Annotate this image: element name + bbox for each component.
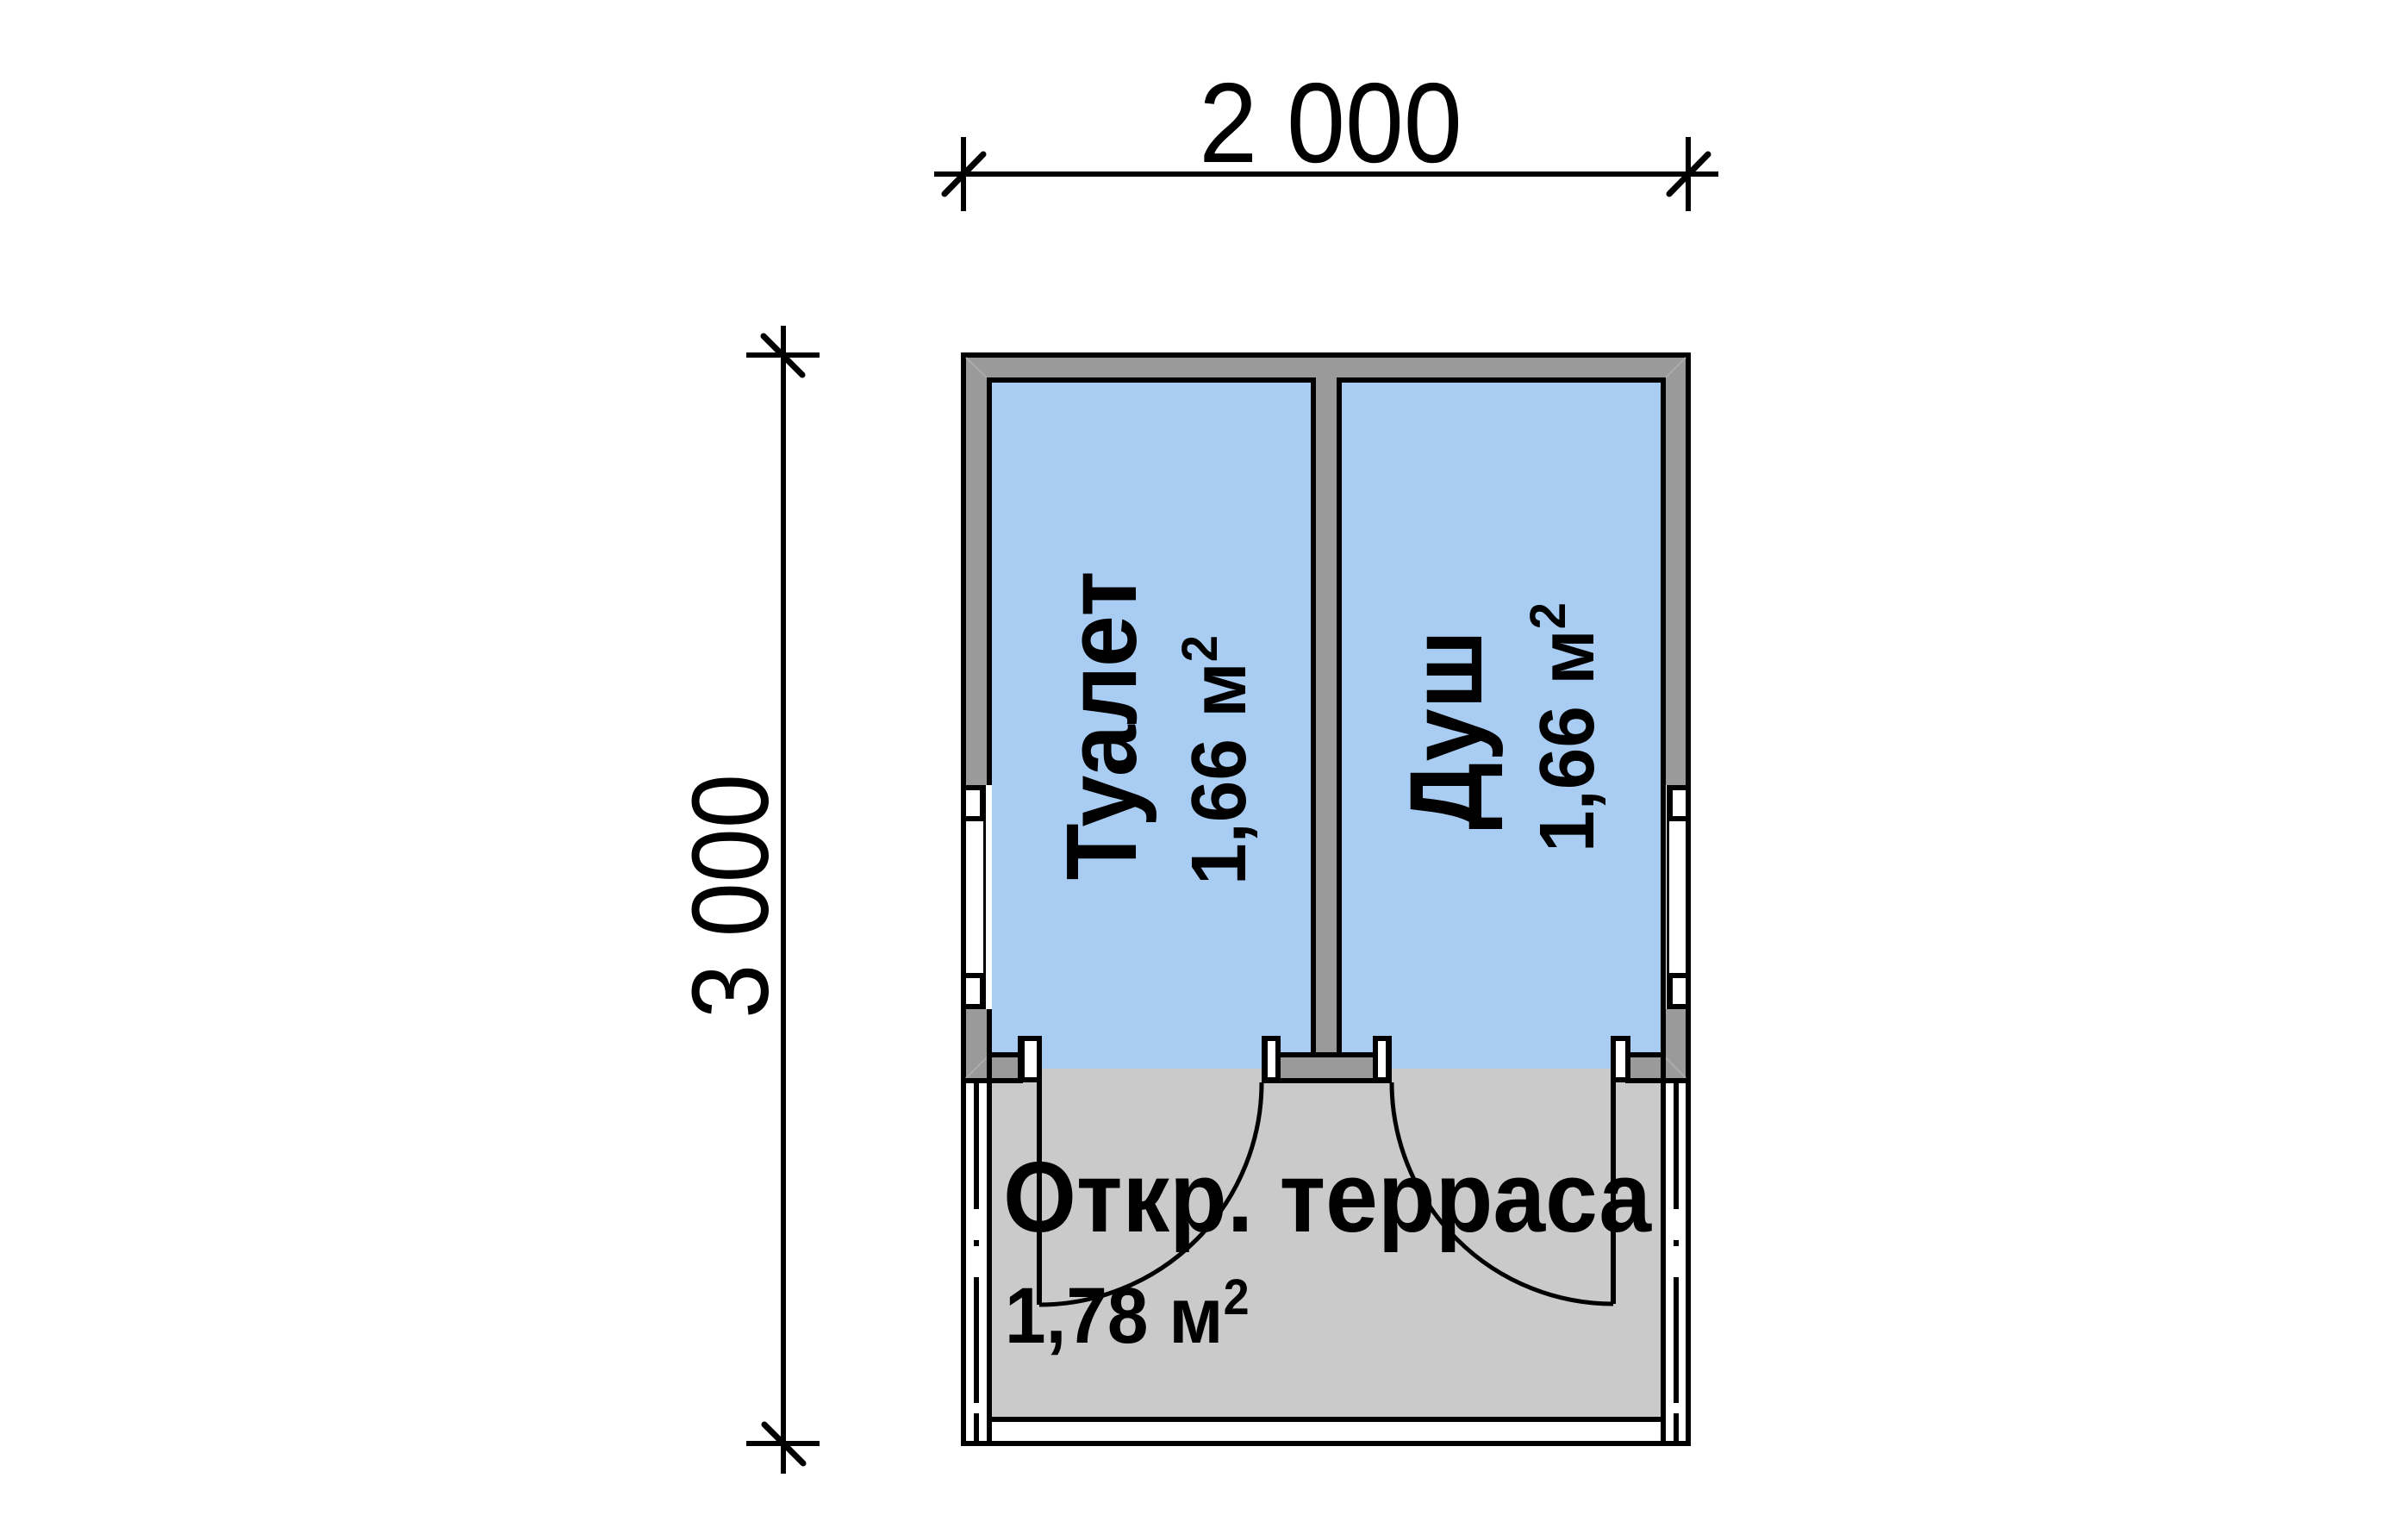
svg-text:3 000: 3 000 <box>670 774 791 1019</box>
svg-text:Откр. терраса: Откр. терраса <box>1003 1141 1652 1253</box>
svg-text:1,66 м2: 1,66 м2 <box>1520 602 1610 852</box>
svg-text:1,78 м2: 1,78 м2 <box>1005 1269 1250 1359</box>
svg-text:Душ: Душ <box>1389 630 1505 830</box>
svg-text:1,66 м2: 1,66 м2 <box>1172 635 1262 885</box>
svg-text:2 000: 2 000 <box>1199 59 1462 186</box>
svg-text:Туалет: Туалет <box>1045 571 1156 881</box>
